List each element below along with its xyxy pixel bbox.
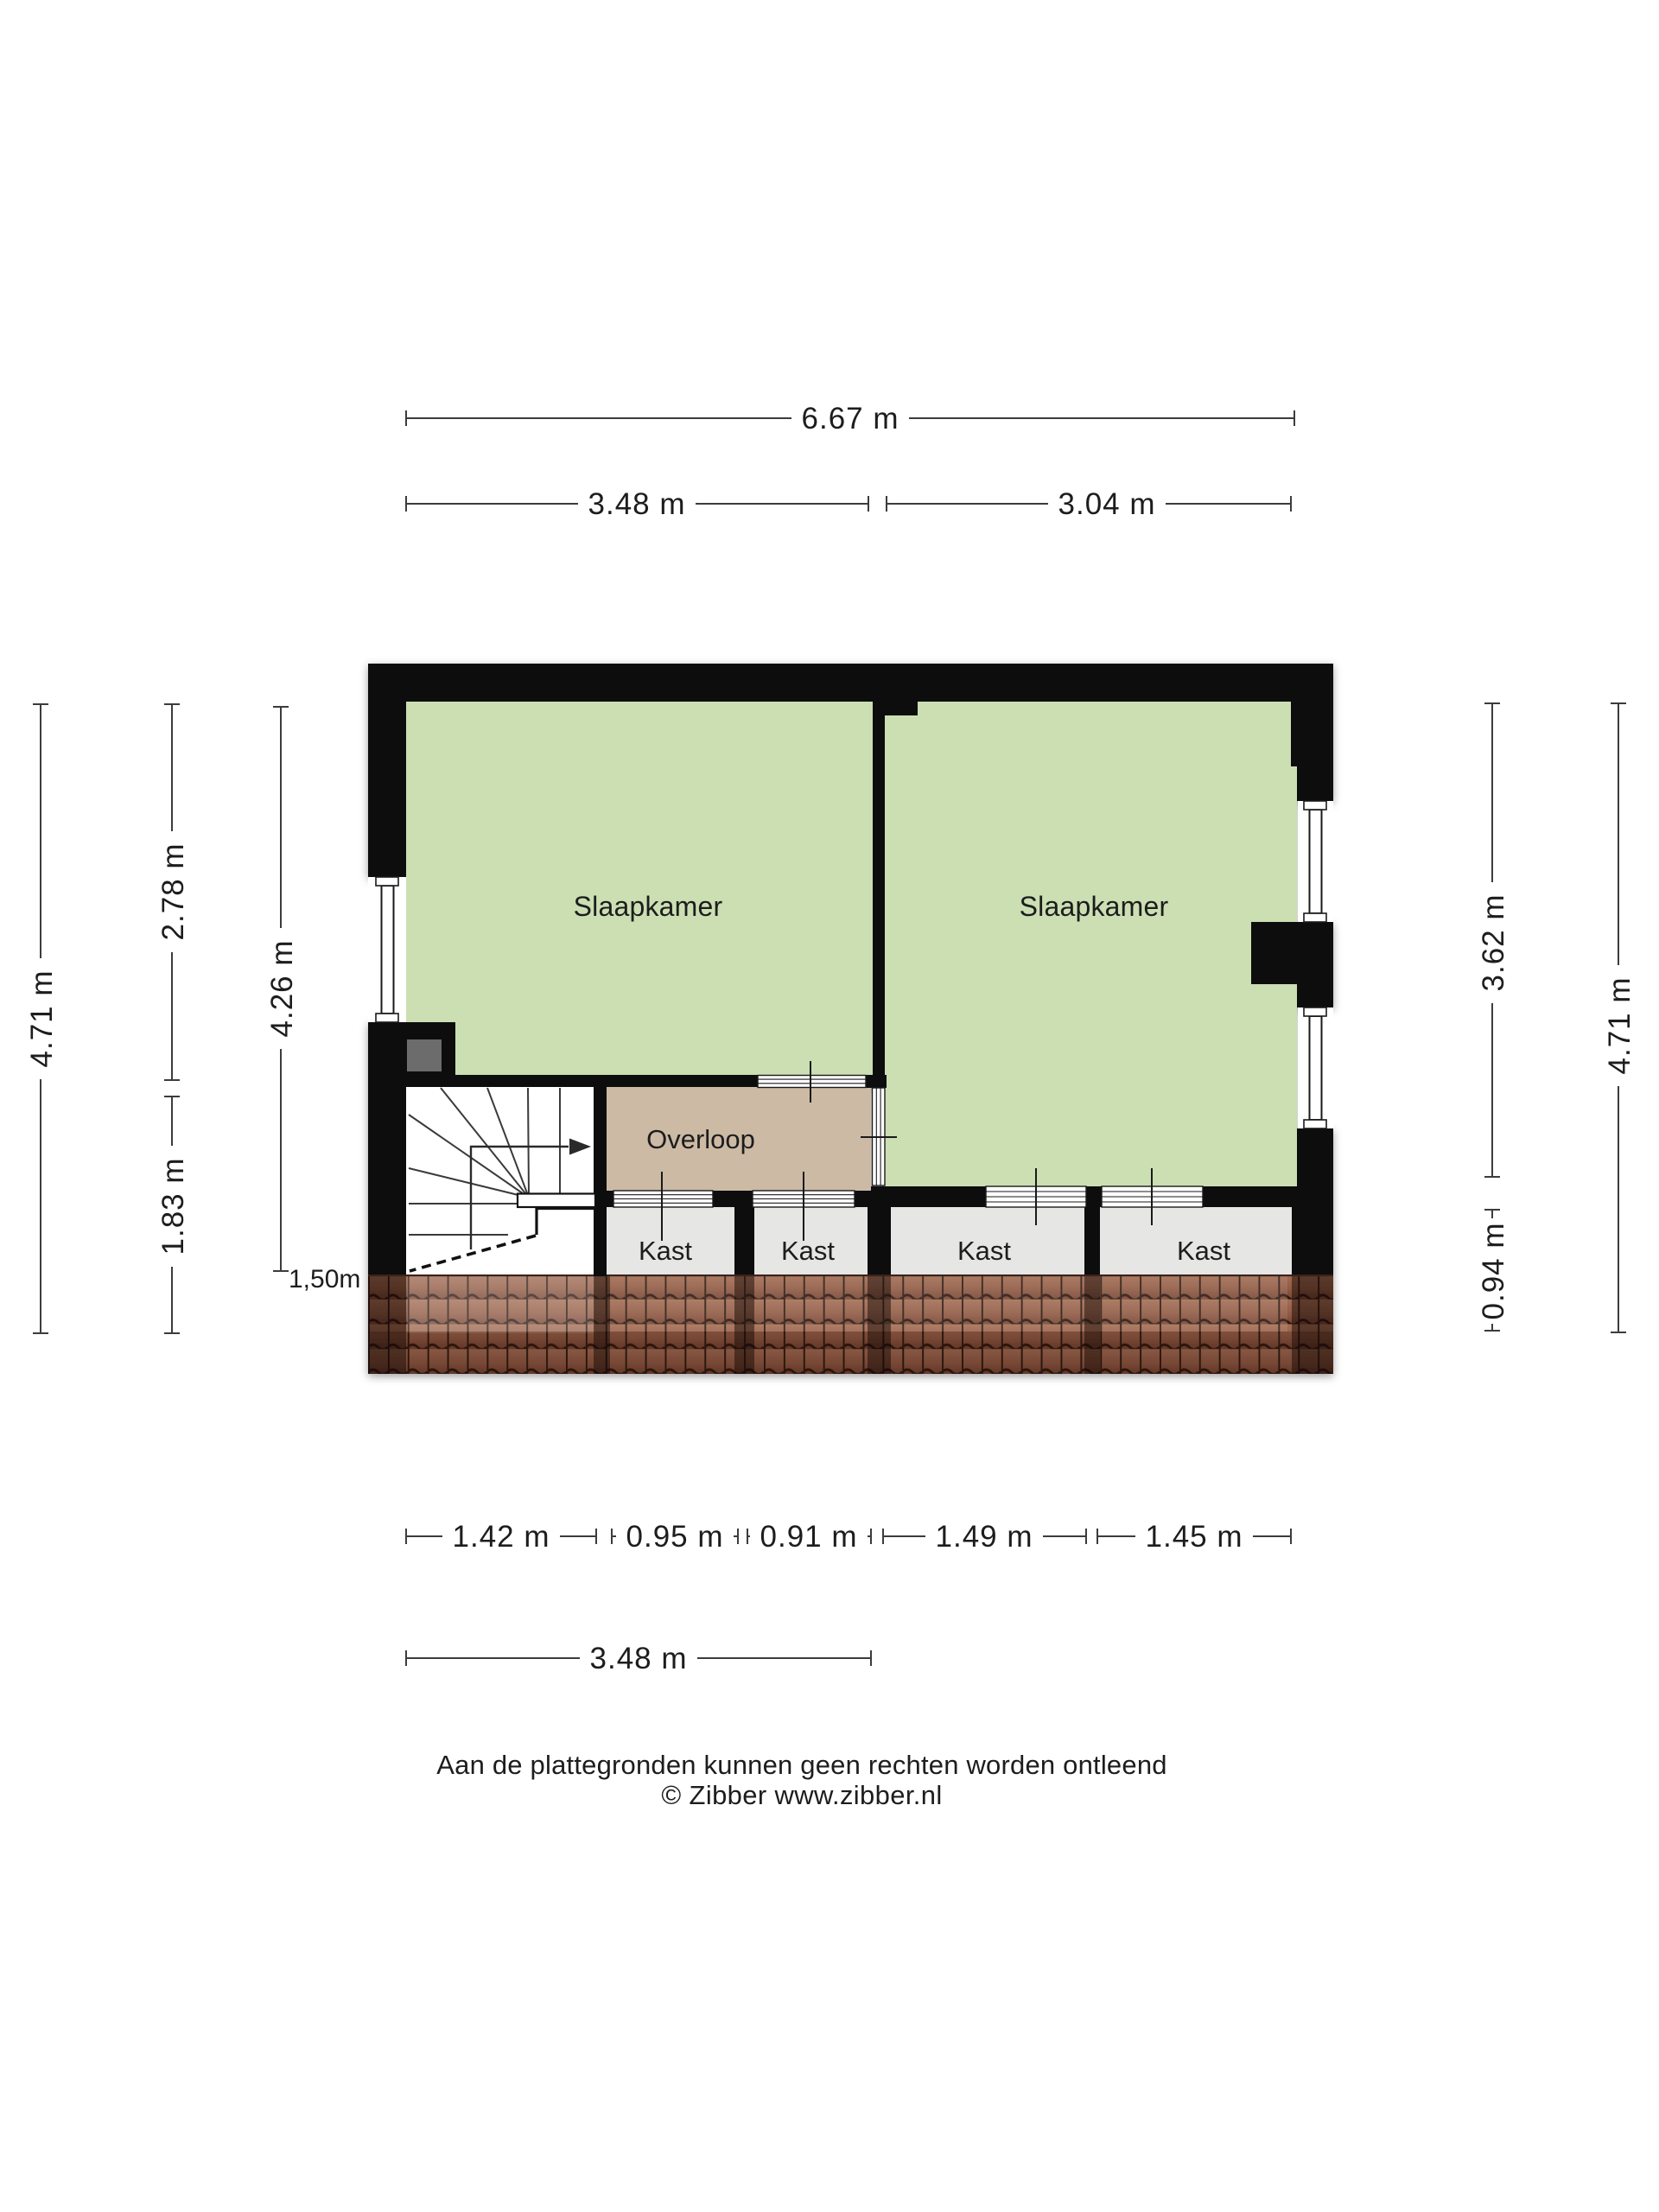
svg-text:Kast: Kast: [957, 1236, 1011, 1266]
svg-text:3.04 m: 3.04 m: [1058, 487, 1156, 521]
svg-text:1,50m: 1,50m: [289, 1265, 360, 1294]
svg-text:1.42 m: 1.42 m: [453, 1520, 550, 1554]
svg-text:Overloop: Overloop: [646, 1124, 755, 1154]
svg-text:Slaapkamer: Slaapkamer: [574, 891, 723, 922]
svg-text:3.48 m: 3.48 m: [588, 487, 686, 521]
svg-text:Aan de plattegronden kunnen ge: Aan de plattegronden kunnen geen rechten…: [436, 1750, 1166, 1780]
svg-text:Kast: Kast: [1177, 1236, 1230, 1266]
svg-text:0.95 m: 0.95 m: [626, 1520, 724, 1554]
svg-text:3.62 m: 3.62 m: [1477, 894, 1510, 992]
svg-text:0.91 m: 0.91 m: [760, 1520, 858, 1554]
svg-text:1.49 m: 1.49 m: [936, 1520, 1033, 1554]
svg-text:4.26 m: 4.26 m: [265, 940, 299, 1038]
svg-text:4.71 m: 4.71 m: [25, 970, 59, 1068]
svg-text:1.45 m: 1.45 m: [1146, 1520, 1243, 1554]
svg-text:3.48 m: 3.48 m: [590, 1642, 688, 1675]
svg-text:Kast: Kast: [781, 1236, 835, 1266]
svg-text:6.67 m: 6.67 m: [802, 402, 899, 435]
svg-text:0.94 m: 0.94 m: [1477, 1223, 1510, 1320]
svg-text:Kast: Kast: [639, 1236, 692, 1266]
svg-text:1.83 m: 1.83 m: [156, 1158, 190, 1255]
svg-text:2.78 m: 2.78 m: [156, 843, 190, 941]
svg-text:4.71 m: 4.71 m: [1603, 977, 1637, 1075]
svg-text:Slaapkamer: Slaapkamer: [1020, 891, 1169, 922]
svg-text:© Zibber www.zibber.nl: © Zibber www.zibber.nl: [661, 1780, 942, 1810]
